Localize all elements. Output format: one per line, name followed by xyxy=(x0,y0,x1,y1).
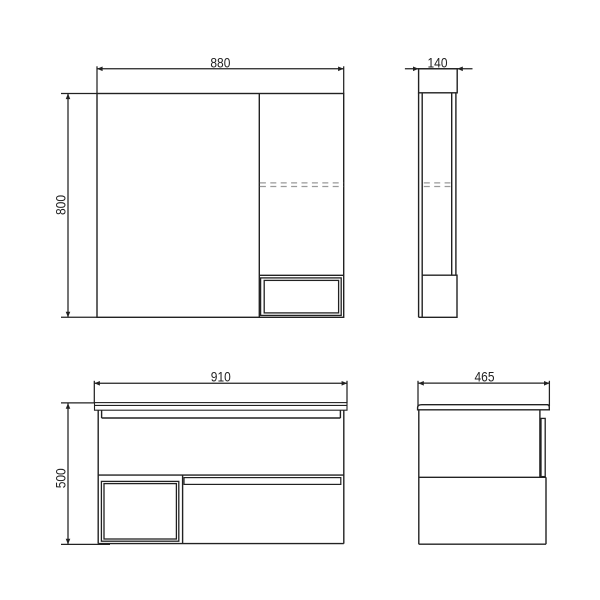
svg-text:800: 800 xyxy=(54,195,69,215)
svg-text:910: 910 xyxy=(211,370,231,385)
svg-text:140: 140 xyxy=(428,55,448,70)
svg-text:500: 500 xyxy=(54,468,69,488)
svg-text:880: 880 xyxy=(210,55,230,70)
svg-text:465: 465 xyxy=(475,370,495,385)
